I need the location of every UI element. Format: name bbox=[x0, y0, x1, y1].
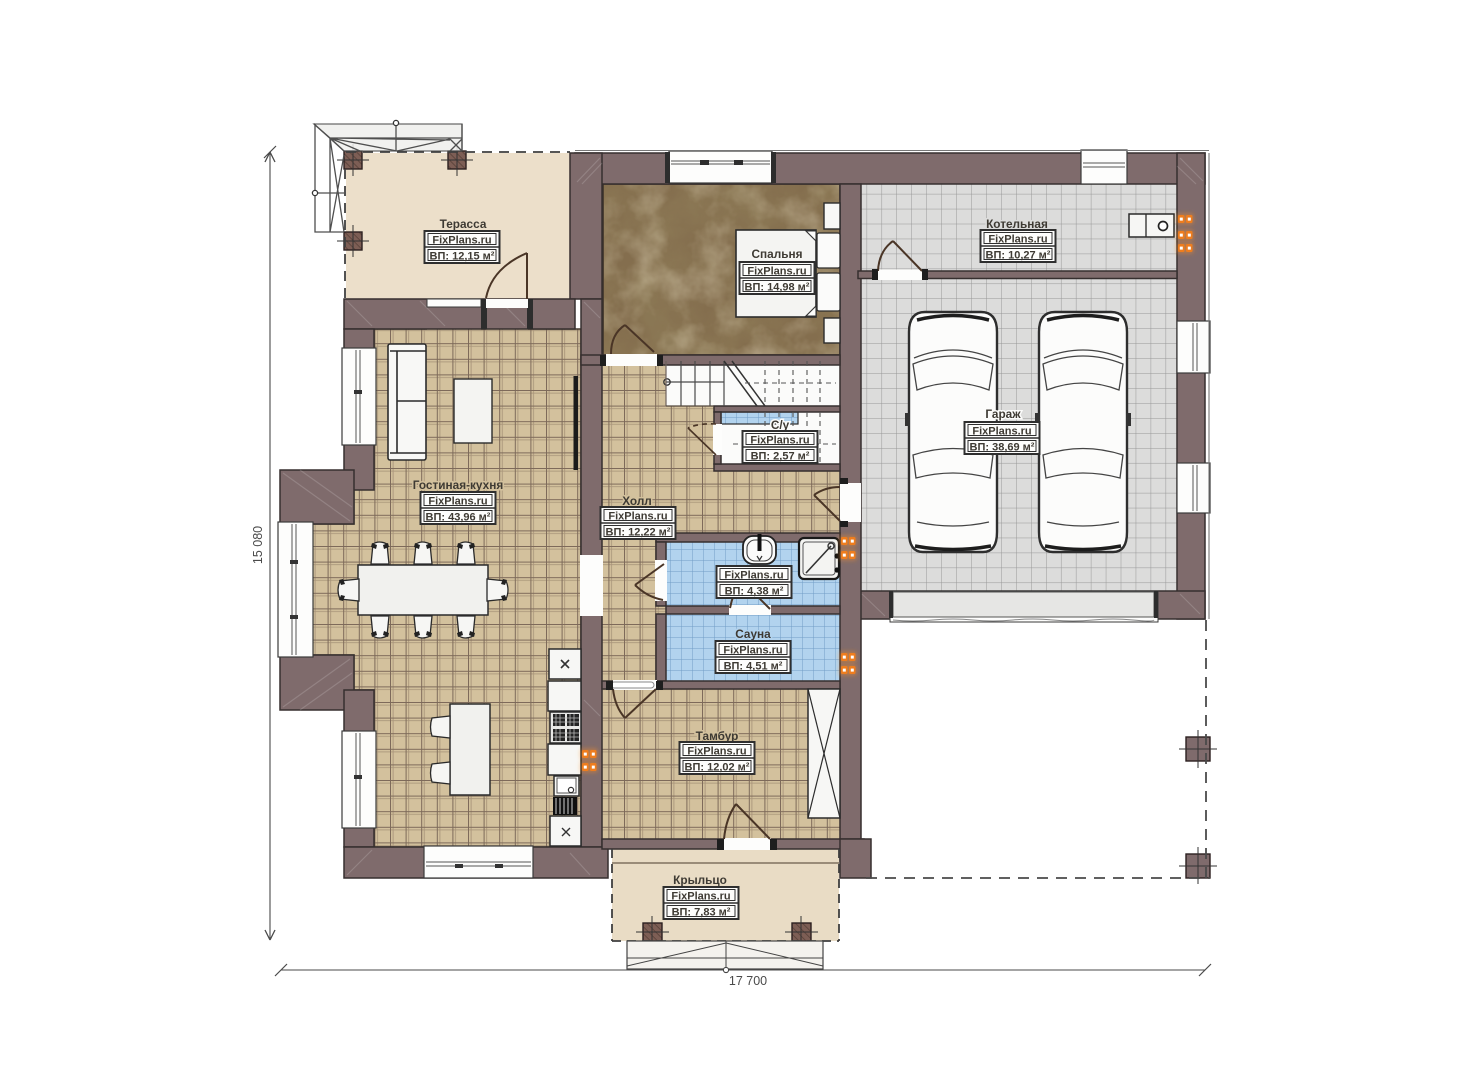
svg-text:FixPlans.ru: FixPlans.ru bbox=[747, 266, 806, 278]
svg-text:FixPlans.ru: FixPlans.ru bbox=[723, 645, 782, 657]
svg-text:ВП: 7,83 м²: ВП: 7,83 м² bbox=[672, 907, 731, 919]
svg-text:Тамбур: Тамбур bbox=[696, 729, 739, 743]
svg-text:15 080: 15 080 bbox=[251, 526, 265, 564]
svg-text:ВП: 38,69 м²: ВП: 38,69 м² bbox=[970, 442, 1035, 454]
svg-text:ВП: 43,96 м²: ВП: 43,96 м² bbox=[426, 512, 491, 524]
svg-text:ВП: 14,98 м²: ВП: 14,98 м² bbox=[745, 282, 810, 294]
svg-text:ВП: 4,38 м²: ВП: 4,38 м² bbox=[725, 586, 784, 598]
svg-text:FixPlans.ru: FixPlans.ru bbox=[724, 570, 783, 582]
svg-text:ВП: 4,51 м²: ВП: 4,51 м² bbox=[724, 661, 783, 673]
svg-text:Холл: Холл bbox=[622, 494, 652, 508]
svg-text:FixPlans.ru: FixPlans.ru bbox=[428, 496, 487, 508]
svg-text:FixPlans.ru: FixPlans.ru bbox=[972, 426, 1031, 438]
svg-text:ВП: 10,27 м²: ВП: 10,27 м² bbox=[986, 250, 1051, 262]
svg-text:ВП: 2,57 м²: ВП: 2,57 м² bbox=[751, 451, 810, 463]
svg-text:FixPlans.ru: FixPlans.ru bbox=[432, 235, 491, 247]
svg-text:17 700: 17 700 bbox=[729, 974, 767, 988]
svg-text:FixPlans.ru: FixPlans.ru bbox=[608, 511, 667, 523]
svg-text:Сауна: Сауна bbox=[735, 627, 771, 641]
svg-text:FixPlans.ru: FixPlans.ru bbox=[671, 891, 730, 903]
svg-text:Гараж: Гараж bbox=[985, 407, 1021, 421]
svg-text:Котельная: Котельная bbox=[986, 217, 1048, 231]
svg-text:ВП: 12,22 м²: ВП: 12,22 м² bbox=[606, 527, 671, 539]
svg-text:FixPlans.ru: FixPlans.ru bbox=[687, 746, 746, 758]
svg-text:Гостиная-кухня: Гостиная-кухня bbox=[413, 478, 504, 492]
svg-text:Терасса: Терасса bbox=[440, 217, 487, 231]
svg-text:FixPlans.ru: FixPlans.ru bbox=[988, 234, 1047, 246]
svg-text:Спальня: Спальня bbox=[752, 247, 803, 261]
svg-text:С/у: С/у bbox=[771, 418, 790, 432]
svg-text:ВП: 12,02 м²: ВП: 12,02 м² bbox=[685, 762, 750, 774]
svg-text:FixPlans.ru: FixPlans.ru bbox=[750, 435, 809, 447]
svg-text:Крыльцо: Крыльцо bbox=[673, 873, 727, 887]
svg-text:ВП: 12,15 м²: ВП: 12,15 м² bbox=[430, 251, 495, 263]
